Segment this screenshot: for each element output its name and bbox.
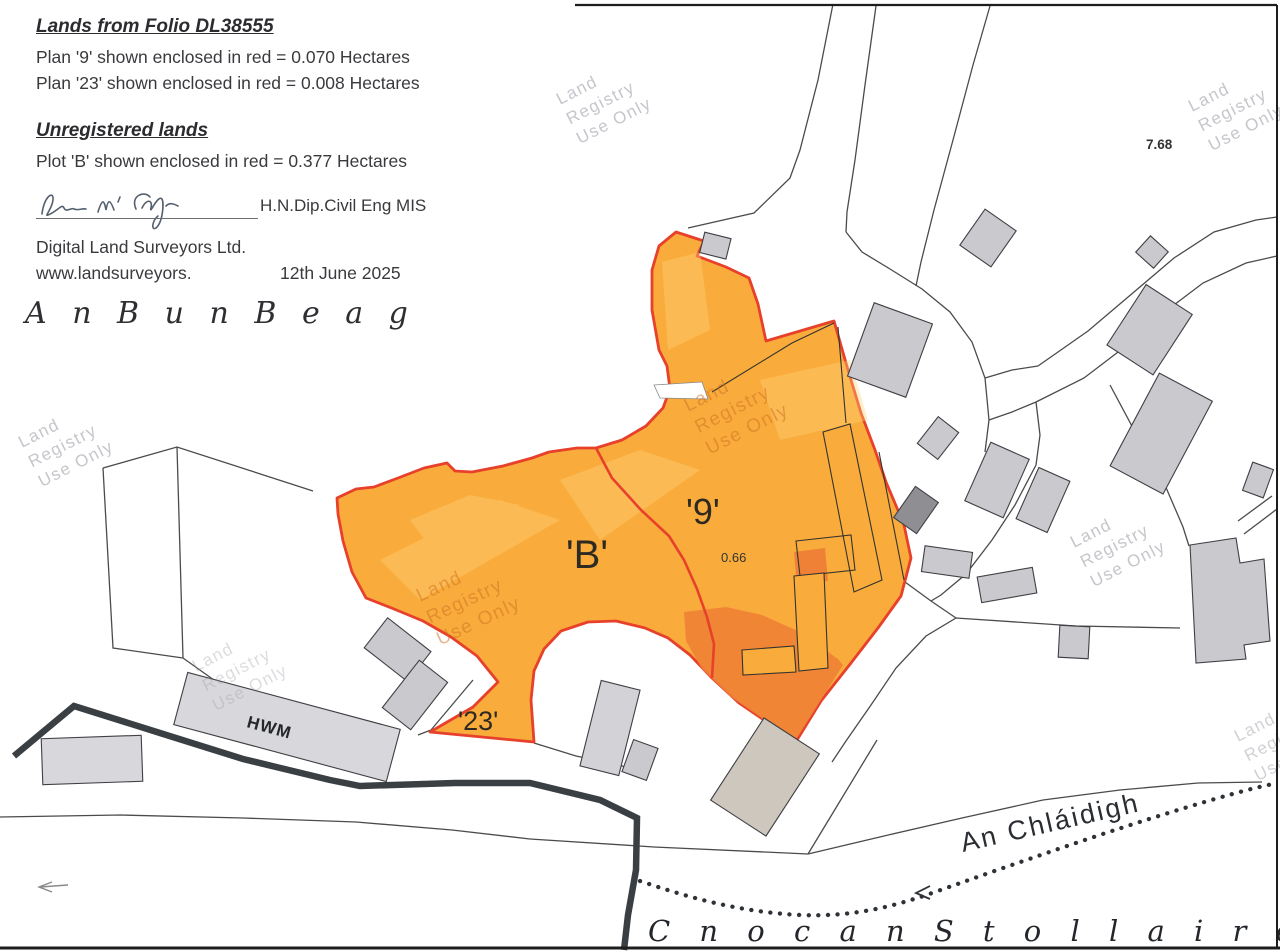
- unregistered-title: Unregistered lands: [36, 120, 556, 142]
- left-arrow-icon: [39, 882, 68, 892]
- credentials-text: H.N.Dip.Civil Eng MIS: [260, 196, 426, 216]
- company-name: Digital Land Surveyors Ltd.: [36, 234, 556, 260]
- website-text: www.landsurveyors.: [36, 260, 280, 286]
- folio-title: Lands from Folio DL38555: [36, 16, 556, 38]
- placename-an-chlaidigh: An Chláidigh: [958, 787, 1143, 857]
- survey-map-sheet: Land Registry Use Only Land Registry Use…: [0, 0, 1280, 952]
- placename-an-bun-beag: A n B u n B e a g: [22, 296, 416, 331]
- plot-9-label: '9': [686, 491, 720, 532]
- signature-line: [36, 218, 258, 219]
- plan9-area-line: Plan '9' shown enclosed in red = 0.070 H…: [36, 44, 556, 70]
- survey-date: 12th June 2025: [280, 260, 401, 286]
- placename-cnoc-an-stollaire: C n o c a n S t o l l a i r e: [648, 914, 1280, 948]
- plan23-area-line: Plan '23' shown enclosed in red = 0.008 …: [36, 70, 556, 96]
- area-768-label: 7.68: [1146, 137, 1173, 152]
- signature-block: H.N.Dip.Civil Eng MIS: [36, 182, 556, 234]
- area-066-label: 0.66: [721, 550, 746, 565]
- legend-block: Lands from Folio DL38555 Plan '9' shown …: [36, 16, 556, 286]
- plot-b-label: 'B': [566, 533, 608, 577]
- plot-23-label: '23': [458, 706, 498, 736]
- signature-scribble: [36, 182, 266, 230]
- plotb-area-line: Plot 'B' shown enclosed in red = 0.377 H…: [36, 148, 556, 174]
